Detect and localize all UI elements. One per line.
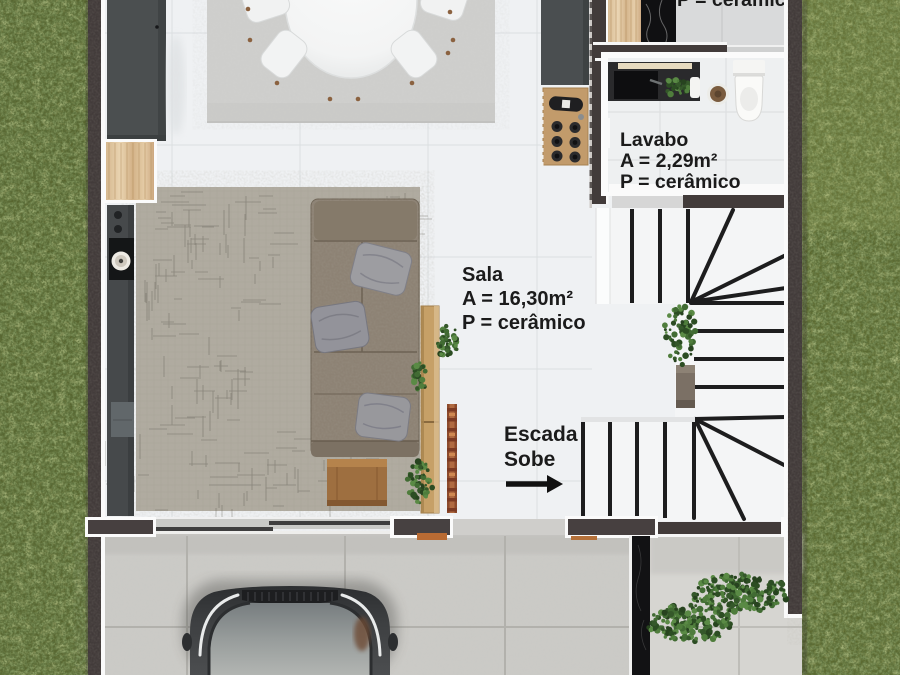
svg-text:A = 16,30m²: A = 16,30m² xyxy=(462,288,573,310)
svg-text:Sala: Sala xyxy=(462,264,504,286)
svg-text:A = 2,29m²: A = 2,29m² xyxy=(620,150,718,172)
svg-text:Escada: Escada xyxy=(504,423,578,446)
svg-text:P = cerâmico: P = cerâmico xyxy=(677,0,798,11)
svg-text:P = cerâmico: P = cerâmico xyxy=(462,312,586,334)
svg-text:Lavabo: Lavabo xyxy=(620,129,688,151)
svg-text:Sobe: Sobe xyxy=(504,448,555,471)
svg-text:P = cerâmico: P = cerâmico xyxy=(620,171,741,193)
